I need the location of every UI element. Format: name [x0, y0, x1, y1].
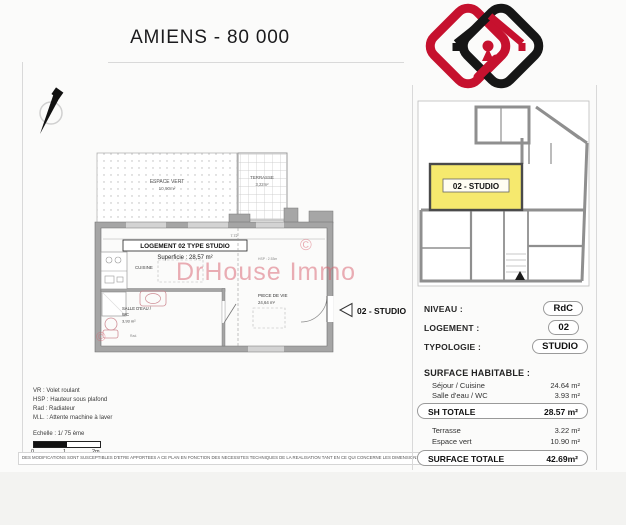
door-opening: [327, 296, 334, 322]
scale-label: Echelle : 1/ 75 ème: [33, 431, 213, 437]
disclaimer-box: DES MODIFICATIONS SONT SUSCEPTIBLES D'ET…: [18, 452, 424, 465]
salle-eau-area: 3,93 m²: [122, 319, 136, 324]
terrasse-area: 3,22m²: [255, 182, 269, 187]
sejour-cuisine-label: Séjour / Cuisine: [432, 381, 485, 390]
espace-vert-row-label: Espace vert: [432, 437, 472, 446]
door-swing-arc: [301, 296, 327, 322]
panel-left-border: [412, 85, 413, 470]
logement-title: LOGEMENT 02 TYPE STUDIO: [140, 243, 230, 250]
terrasse-row-value: 3.22 m²: [555, 426, 580, 435]
unit-tag-label: 02 - STUDIO: [357, 306, 407, 316]
typologie-label: TYPOLOGIE :: [424, 342, 481, 352]
unit-tag: 02 - STUDIO: [340, 304, 407, 317]
watermark-text: DrHouse Immo: [176, 258, 356, 286]
salle-eau-wc-label: Salle d'eau / WC: [432, 391, 488, 400]
terrasse-label: TERRASSE: [250, 175, 274, 180]
panel-right-border: [596, 85, 597, 470]
dimension-top: 7.72: [103, 234, 325, 239]
title-underline: [108, 62, 404, 63]
espace-vert-row-value: 10.90 m²: [550, 437, 580, 446]
piece-vie-label: PIECE DE VIE: [258, 293, 288, 298]
typologie-value-badge: STUDIO: [532, 339, 588, 354]
bathroom: SALLE D'EAU / WC 3,93 m² Rad.: [101, 289, 236, 347]
logement-label: LOGEMENT :: [424, 323, 479, 333]
north-arrow-icon: [28, 86, 74, 140]
wc-label: WC: [122, 312, 129, 317]
niveau-label: NIVEAU :: [424, 304, 463, 314]
surface-totale-value: 42.69m²: [546, 454, 578, 464]
sheet-left-border: [22, 62, 23, 458]
salle-eau-label: SALLE D'EAU /: [122, 306, 152, 311]
surface-totale-label: SURFACE TOTALE: [428, 454, 504, 464]
wall-pier: [284, 208, 298, 223]
wall-pier: [229, 214, 250, 223]
legend-line-hsp: HSP : Hauteur sous plafond: [33, 397, 213, 403]
key-plan-unit-label: 02 - STUDIO: [453, 182, 499, 191]
copyright-mark: ©: [300, 237, 312, 254]
scale-bar-filled: [34, 442, 67, 447]
surface-totale-row: SURFACE TOTALE 42.69m²: [417, 450, 588, 466]
scale-bar: [33, 441, 101, 448]
logement-value-badge: 02: [548, 320, 579, 335]
salle-eau-wc-value: 3.93 m²: [555, 391, 580, 400]
surface-habitable-heading: SURFACE HABITABLE :: [424, 368, 530, 378]
sh-totale-label: SH TOTALE: [428, 407, 475, 417]
copyright-mark-2: ©: [96, 329, 106, 344]
dimension-value: 7.72: [231, 234, 238, 238]
wall-pier: [309, 211, 333, 223]
legend-line-vr: VR : Volet roulant: [33, 388, 213, 394]
tag-arrow-icon: [340, 304, 352, 317]
niveau-value-badge: RdC: [543, 301, 583, 316]
sejour-cuisine-value: 24.64 m²: [550, 381, 580, 390]
kitchen: CUISINE: [101, 252, 153, 289]
key-plan-highlight-unit: 02 - STUDIO: [430, 164, 522, 210]
main-floor-plan: ESPACE VERT 10,90m² TERRASSE 3,22m²: [88, 138, 408, 375]
espace-vert-area: 10,90m²: [159, 186, 176, 191]
cuisine-label: CUISINE: [135, 265, 153, 270]
terrasse-zone: TERRASSE 3,22m²: [238, 153, 287, 220]
espace-vert-zone: ESPACE VERT 10,90m²: [97, 153, 237, 227]
plan-document: AMIENS - 80 000: [0, 0, 626, 525]
page-title: AMIENS - 80 000: [88, 27, 332, 49]
sh-totale-row: SH TOTALE 28.57 m²: [417, 403, 588, 419]
drhouse-immo-logo-icon: [412, 1, 552, 94]
espace-vert-label: ESPACE VERT: [150, 179, 185, 185]
rad-note: Rad.: [130, 334, 137, 338]
legend-line-rad: Rad : Radiateur: [33, 406, 213, 412]
bottom-margin: [0, 472, 626, 525]
legend-line-ml: M.L. : Attente machine à laver: [33, 415, 213, 421]
key-plan: 02 - STUDIO: [416, 98, 592, 290]
agency-logo: [412, 1, 552, 94]
terrasse-row-label: Terrasse: [432, 426, 461, 435]
sh-totale-value: 28.57 m²: [544, 407, 578, 417]
piece-vie-area: 24,64 m²: [258, 300, 276, 305]
